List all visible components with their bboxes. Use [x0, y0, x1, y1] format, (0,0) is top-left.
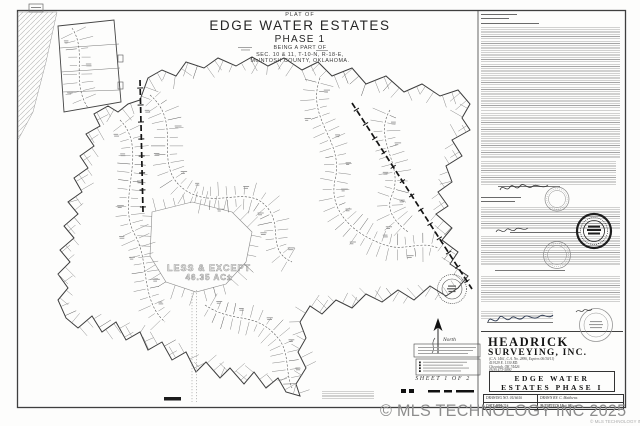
- signature-line: [498, 186, 560, 187]
- mls-watermark-small: © MLS TECHNOLOGY INC 2025: [590, 419, 640, 424]
- fine-print-heading: [481, 197, 521, 198]
- mls-watermark: © MLS TECHNOLOGY INC 2025: [380, 401, 626, 421]
- certificate-paragraph: [481, 276, 620, 302]
- signature-line: [487, 322, 553, 323]
- certificate-paragraph: [481, 311, 553, 319]
- certificate-paragraph: [481, 236, 620, 266]
- dedication-paragraph: [481, 27, 620, 111]
- fine-print-heading: [481, 201, 515, 202]
- basis-of-bearing-note: [322, 391, 374, 399]
- dedication-paragraph: [481, 113, 620, 159]
- surveyor-firm-block: HEADRICK SURVEYING, INC. (C.A. 1461, C.A…: [481, 331, 623, 409]
- acknowledgment-paragraph: [481, 207, 620, 229]
- fine-print-heading: [481, 14, 517, 15]
- project-title-line1: EDGE WATER: [490, 374, 614, 383]
- fine-print-heading: [510, 232, 580, 233]
- project-title-line2: ESTATES PHASE I: [490, 383, 614, 392]
- project-title-box: EDGE WATER ESTATES PHASE I: [489, 371, 615, 392]
- dedication-paragraph: [481, 161, 616, 185]
- signature-line: [495, 270, 565, 271]
- fine-print-heading: [481, 23, 539, 24]
- fine-print-heading: [481, 18, 509, 19]
